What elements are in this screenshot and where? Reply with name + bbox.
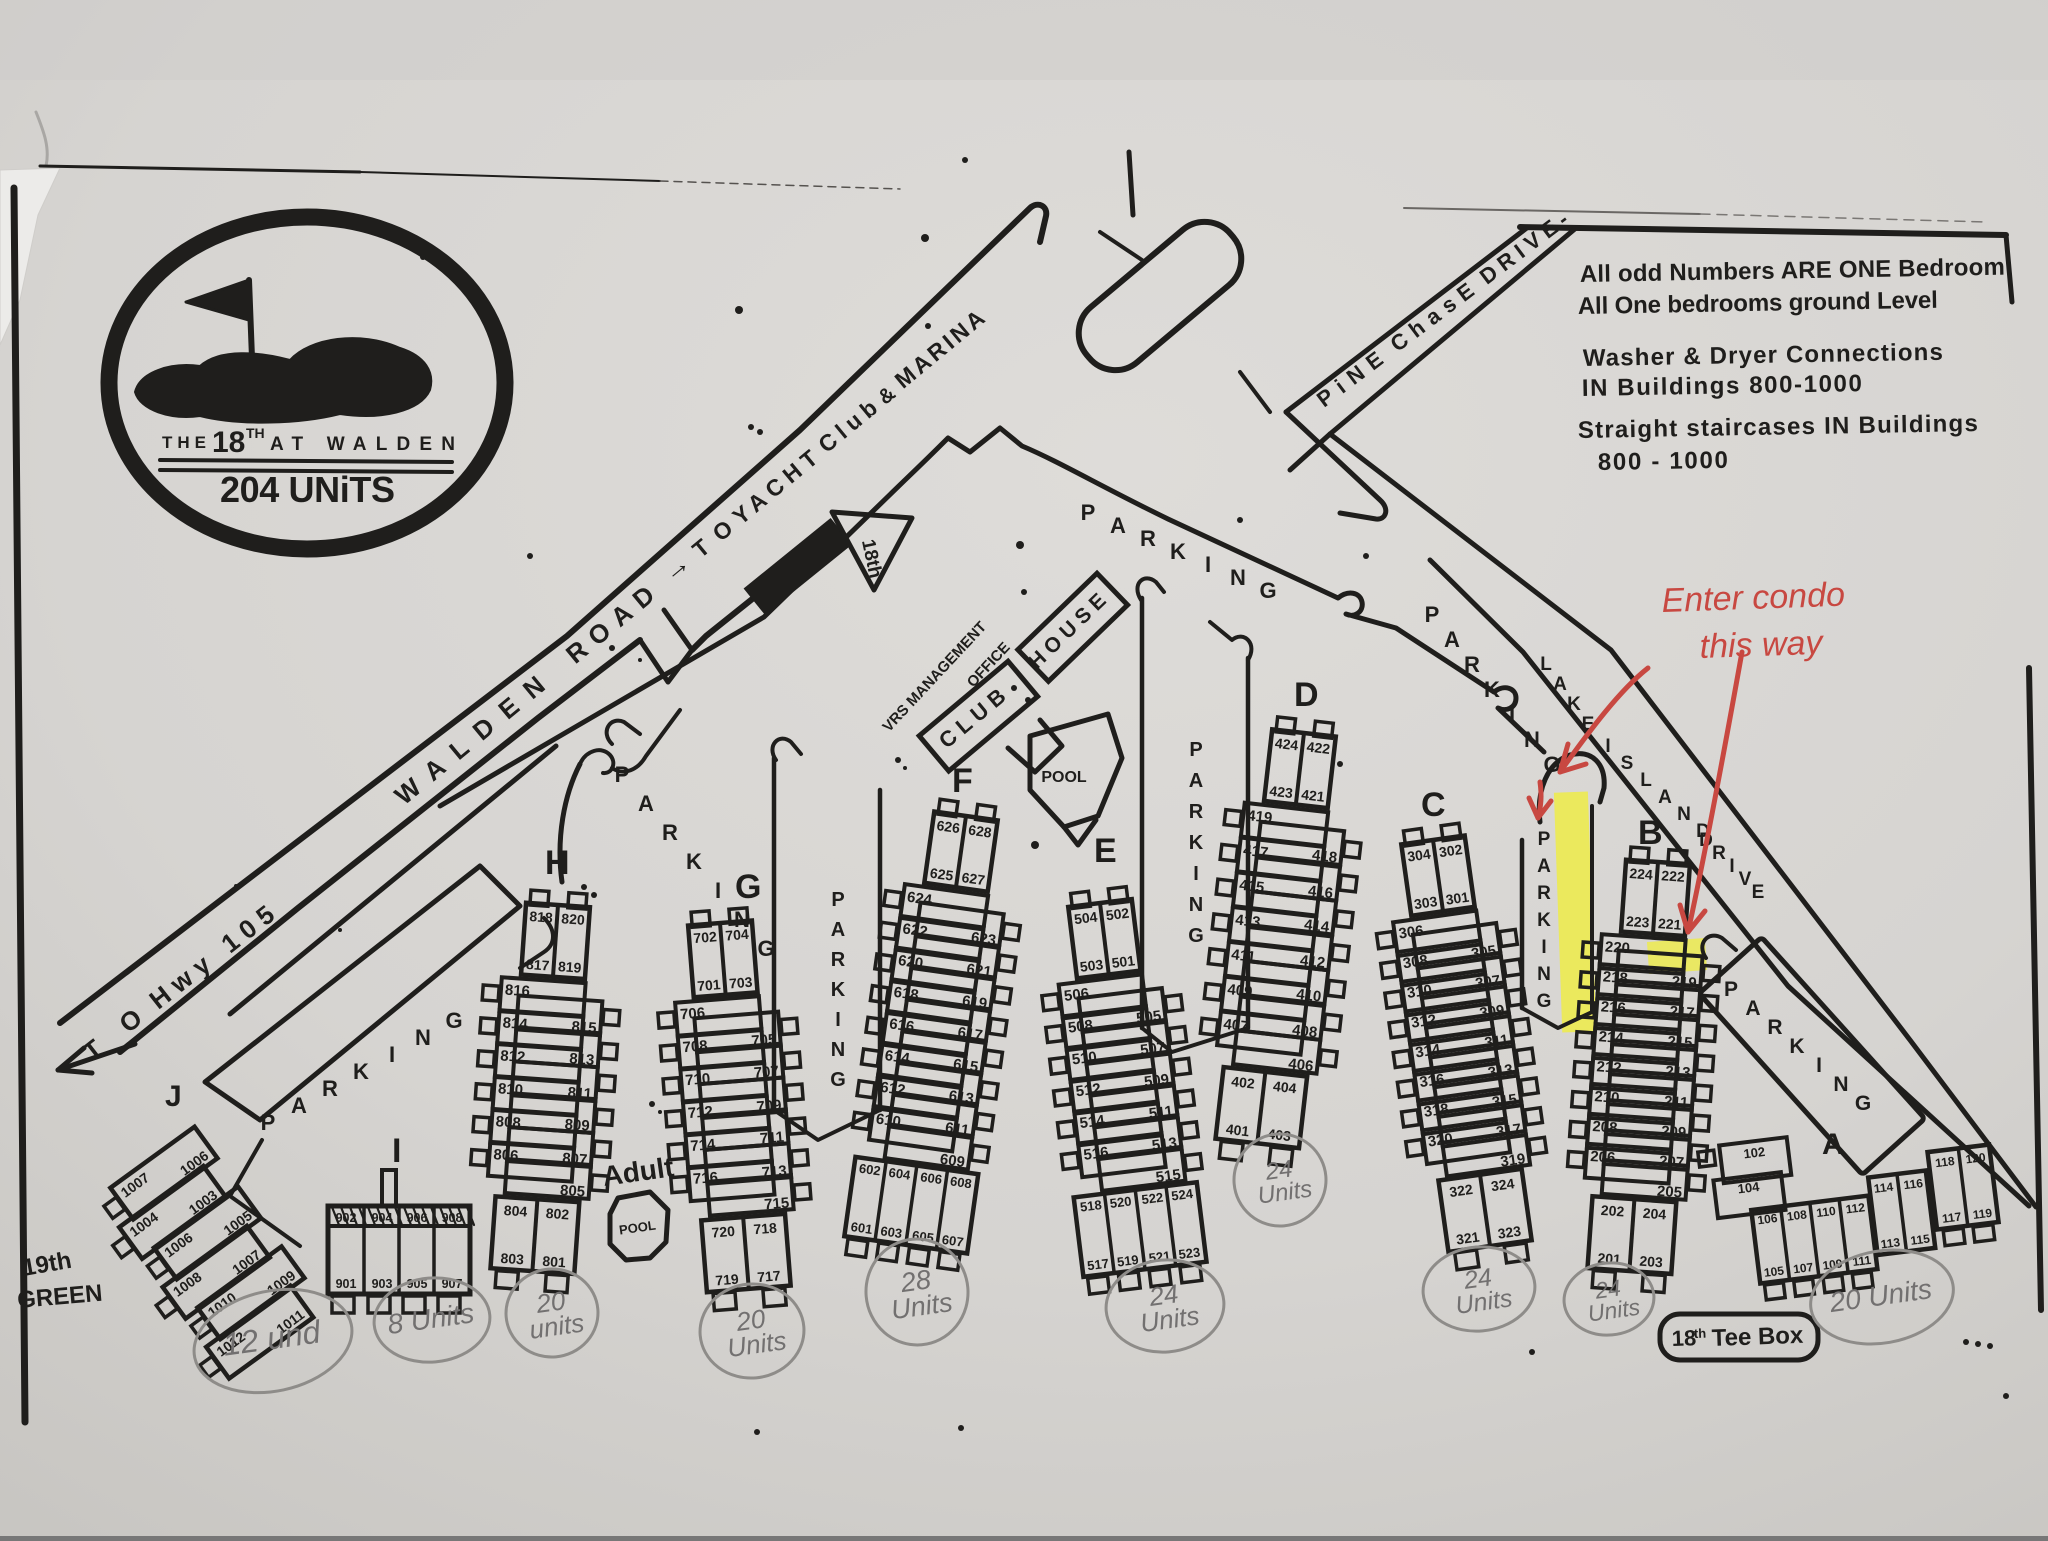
svg-text:712: 712 [687,1103,713,1122]
svg-text:E: E [1094,832,1117,870]
svg-text:608: 608 [949,1173,973,1191]
svg-text:627: 627 [961,869,987,888]
svg-text:120: 120 [1965,1150,1987,1166]
svg-text:703: 703 [728,974,753,992]
svg-text:322: 322 [1448,1181,1474,1200]
svg-text:402: 402 [1231,1073,1256,1092]
svg-text:506: 506 [1063,985,1090,1005]
svg-text:R: R [831,949,846,971]
svg-text:324: 324 [1490,1175,1516,1194]
svg-text:IN Buildings 800-1000: IN Buildings 800-1000 [1582,370,1862,402]
svg-text:107: 107 [1792,1260,1814,1276]
svg-text:R: R [1537,883,1551,904]
svg-text:J: J [165,1080,182,1113]
svg-text:P: P [1724,978,1738,1001]
svg-text:P: P [1189,739,1202,761]
svg-text:A: A [1189,770,1203,792]
svg-text:K: K [1484,677,1500,702]
svg-text:503: 503 [1079,956,1104,975]
svg-text:512: 512 [1075,1080,1102,1100]
svg-text:720: 720 [711,1223,736,1241]
svg-text:C: C [1421,786,1446,824]
svg-text:606: 606 [919,1169,943,1187]
svg-text:205: 205 [1656,1183,1682,1202]
svg-text:G: G [830,1069,846,1091]
svg-text:F: F [952,762,973,800]
svg-text:E: E [1752,882,1765,903]
svg-text:906: 906 [407,1211,428,1225]
svg-text:K: K [1170,539,1186,564]
svg-text:800 - 1000: 800 - 1000 [1598,447,1728,476]
svg-text:708: 708 [682,1037,708,1056]
svg-text:302: 302 [1438,841,1464,860]
svg-text:A: A [1745,997,1760,1020]
svg-text:R: R [322,1076,338,1101]
svg-text:AT WALDEN: AT WALDEN [270,434,455,455]
svg-text:P: P [261,1110,276,1135]
svg-text:K: K [1189,832,1204,854]
svg-text:626: 626 [936,817,962,836]
svg-text:104: 104 [1737,1179,1761,1197]
svg-text:904: 904 [372,1211,393,1225]
svg-text:th: th [1694,1326,1707,1341]
svg-text:802: 802 [545,1205,570,1223]
svg-text:116: 116 [1903,1176,1924,1192]
svg-text:105: 105 [1763,1264,1785,1280]
svg-text:N: N [1833,1073,1848,1096]
svg-text:112: 112 [1845,1200,1866,1216]
svg-text:18: 18 [212,426,245,459]
svg-text:I: I [1605,736,1610,757]
svg-text:524: 524 [1170,1186,1194,1204]
svg-text:323: 323 [1497,1223,1523,1242]
svg-text:901: 901 [336,1277,357,1291]
svg-text:A: A [1822,1128,1844,1161]
svg-text:710: 710 [685,1070,711,1089]
svg-text:706: 706 [679,1004,705,1023]
svg-text:423: 423 [1269,783,1294,802]
svg-text:304: 304 [1406,846,1432,865]
svg-text:I: I [715,878,721,903]
svg-text:K: K [1567,694,1581,715]
svg-text:K: K [353,1059,369,1084]
svg-text:716: 716 [692,1169,718,1188]
svg-text:I: I [1541,937,1546,958]
svg-text:G: G [445,1008,462,1033]
svg-text:119: 119 [1972,1206,1993,1222]
svg-text:G: G [735,868,761,906]
svg-text:K: K [1537,910,1551,931]
svg-text:A: A [638,791,654,816]
svg-text:820: 820 [561,910,586,928]
svg-text:G: G [1259,578,1276,603]
svg-text:R: R [1140,526,1156,551]
svg-text:221: 221 [1657,915,1682,933]
svg-text:L: L [1540,654,1552,675]
svg-text:A: A [1537,856,1551,877]
svg-text:202: 202 [1600,1202,1625,1220]
svg-text:I: I [1193,863,1199,885]
svg-text:V: V [1739,869,1752,890]
svg-text:601: 601 [850,1219,874,1237]
svg-text:106: 106 [1757,1211,1779,1227]
svg-text:N: N [1537,964,1551,985]
svg-text:520: 520 [1109,1193,1132,1211]
svg-text:522: 522 [1141,1190,1164,1208]
svg-text:404: 404 [1272,1078,1297,1097]
svg-text:819: 819 [557,958,582,976]
svg-text:514: 514 [1079,1112,1107,1132]
svg-text:523: 523 [1178,1244,1201,1262]
svg-text:P: P [831,889,844,911]
svg-text:H: H [545,844,570,882]
svg-text:N: N [831,1039,845,1061]
svg-text:A: A [831,919,845,941]
svg-text:717: 717 [757,1267,782,1285]
svg-text:204: 204 [1642,1205,1667,1223]
svg-text:421: 421 [1300,786,1325,805]
svg-text:P: P [1538,829,1551,850]
svg-text:R: R [1767,1016,1782,1039]
svg-text:S: S [1621,753,1634,774]
svg-text:223: 223 [1626,913,1651,931]
svg-text:704: 704 [725,926,750,944]
svg-text:422: 422 [1306,738,1331,757]
svg-text:TH: TH [246,425,265,441]
svg-text:502: 502 [1105,905,1130,924]
svg-text:517: 517 [1086,1256,1109,1274]
svg-text:G: G [1188,925,1204,947]
svg-text:628: 628 [967,822,993,841]
svg-text:602: 602 [858,1161,882,1179]
svg-text:625: 625 [929,865,955,884]
svg-text:803: 803 [500,1250,525,1268]
svg-text:P: P [615,762,630,787]
svg-text:108: 108 [1786,1207,1808,1223]
svg-text:817: 817 [526,956,551,974]
svg-text:N: N [1230,565,1246,590]
svg-text:508: 508 [1067,1017,1094,1037]
svg-text:N: N [1189,894,1203,916]
svg-text:504: 504 [1073,908,1098,927]
svg-text:K: K [686,849,702,874]
svg-text:303: 303 [1413,893,1439,912]
svg-text:I: I [1509,702,1515,727]
svg-text:203: 203 [1639,1253,1664,1271]
svg-text:510: 510 [1071,1049,1098,1069]
svg-text:605: 605 [911,1228,935,1246]
svg-text:I: I [1205,552,1211,577]
svg-text:P: P [1425,602,1440,627]
svg-text:110: 110 [1816,1204,1837,1220]
svg-text:R: R [662,820,678,845]
svg-text:118: 118 [1934,1154,1955,1170]
svg-text:I: I [389,1042,395,1067]
svg-text:R: R [1712,843,1726,864]
svg-text:805: 805 [559,1182,585,1201]
svg-text:804: 804 [503,1202,528,1220]
svg-text:Tee Box: Tee Box [1711,1322,1804,1352]
svg-text:715: 715 [764,1194,790,1213]
svg-text:401: 401 [1225,1121,1250,1140]
svg-text:N: N [1677,804,1691,825]
svg-text:424: 424 [1274,735,1299,754]
svg-text:N: N [415,1025,431,1050]
svg-text:THE: THE [162,433,206,452]
svg-text:A: A [1444,627,1460,652]
svg-text:117: 117 [1941,1209,1962,1225]
svg-text:R: R [1464,652,1480,677]
svg-text:D: D [1294,676,1319,714]
svg-text:222: 222 [1661,867,1686,885]
svg-text:Enter condo: Enter condo [1661,576,1846,620]
svg-text:818: 818 [529,908,554,926]
svg-text:K: K [1789,1035,1804,1058]
svg-text:A: A [291,1093,307,1118]
svg-text:701: 701 [697,976,722,994]
svg-text:I: I [1729,856,1734,877]
svg-text:321: 321 [1455,1228,1481,1247]
svg-text:718: 718 [753,1219,778,1237]
svg-text:L: L [1640,770,1652,791]
svg-text:this way: this way [1699,624,1825,666]
svg-text:516: 516 [1083,1144,1110,1164]
svg-text:A: A [1658,787,1672,808]
svg-text:P: P [1081,500,1096,525]
svg-text:518: 518 [1079,1197,1102,1215]
svg-text:301: 301 [1445,889,1471,908]
svg-text:A: A [1553,674,1567,695]
svg-text:501: 501 [1111,952,1136,971]
svg-text:224: 224 [1629,865,1654,883]
svg-text:702: 702 [693,928,718,946]
svg-text:903: 903 [372,1277,393,1291]
svg-text:G: G [1855,1092,1871,1115]
svg-text:K: K [831,979,846,1001]
svg-text:902: 902 [336,1211,357,1225]
svg-text:908: 908 [442,1211,463,1225]
svg-text:POOL: POOL [1041,769,1087,786]
svg-text:G: G [1537,991,1552,1012]
svg-text:406: 406 [1287,1055,1314,1075]
svg-text:102: 102 [1743,1144,1766,1162]
svg-text:I: I [835,1009,841,1031]
svg-text:604: 604 [888,1165,912,1183]
svg-text:B: B [1638,814,1663,852]
svg-text:I: I [1816,1054,1822,1077]
svg-text:R: R [1189,801,1204,823]
svg-text:115: 115 [1910,1232,1931,1248]
svg-text:I: I [392,1132,401,1170]
svg-text:N: N [1524,727,1540,752]
svg-text:603: 603 [880,1223,904,1241]
svg-text:114: 114 [1873,1180,1894,1196]
svg-text:204 UNiTS: 204 UNiTS [220,469,395,510]
svg-text:A: A [1110,513,1126,538]
